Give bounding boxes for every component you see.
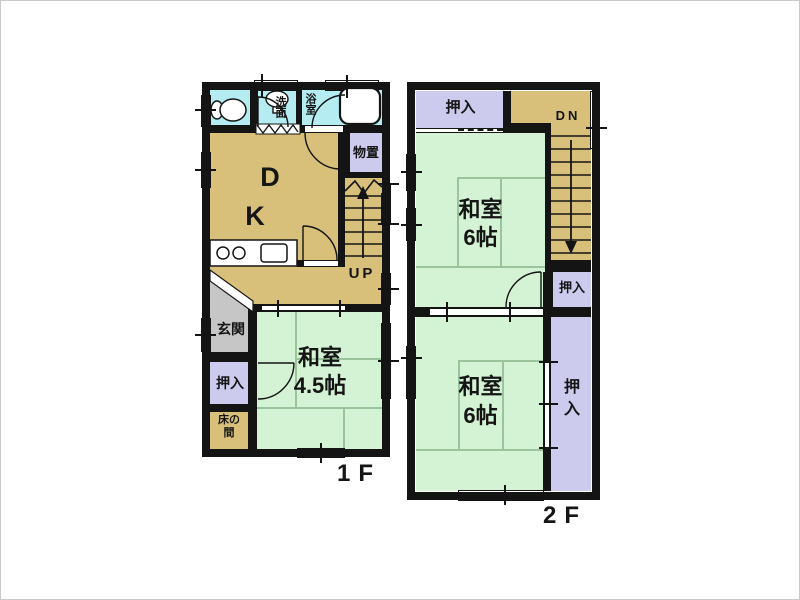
stairs-up-arrow bbox=[357, 186, 369, 258]
washitsu-6-upper-name: 和室 bbox=[418, 196, 543, 224]
closet-2f-top-label: 押入 bbox=[418, 99, 503, 117]
door-arc bbox=[303, 226, 337, 260]
tokonoma-label: 床の 間 bbox=[210, 414, 248, 440]
tokonoma-line1: 床の bbox=[210, 414, 248, 427]
floor-2-label: 2F bbox=[533, 502, 597, 531]
tokonoma-line2: 間 bbox=[210, 427, 248, 440]
washitsu-6-upper-label: 和室 6帖 bbox=[418, 196, 543, 252]
closet-2f-right-label: 押入 bbox=[561, 378, 577, 422]
window-ticks bbox=[195, 74, 607, 505]
washroom-label: 洗面 bbox=[274, 96, 285, 118]
dining-label: D bbox=[250, 161, 290, 193]
kitchen-label: K bbox=[235, 200, 275, 232]
kitchen-counter bbox=[210, 240, 297, 266]
door-arc bbox=[506, 272, 541, 307]
washitsu-6-upper-size: 6帖 bbox=[418, 224, 543, 252]
stairs-down-label: DN bbox=[547, 108, 589, 124]
closet-1f-label: 押入 bbox=[211, 375, 249, 392]
symbols-layer bbox=[0, 0, 800, 600]
accordion-door bbox=[256, 124, 300, 134]
entrance-label: 玄関 bbox=[211, 321, 251, 338]
stairs-up-label: UP bbox=[342, 265, 382, 283]
stairs-down-arrow bbox=[565, 140, 577, 254]
washitsu-4-5-name: 和室 bbox=[260, 344, 380, 372]
storage-label: 物置 bbox=[350, 145, 382, 161]
bathroom-label: 浴室 bbox=[304, 93, 315, 115]
washitsu-4-5-label: 和室 4.5帖 bbox=[260, 344, 380, 400]
washitsu-4-5-size: 4.5帖 bbox=[260, 372, 380, 400]
floor-plan: 洗面 浴室 D K 物置 UP 玄関 押入 床の 間 和室 4.5帖 1F 押入… bbox=[0, 0, 800, 600]
washitsu-6-lower-name: 和室 bbox=[418, 372, 543, 401]
floor-1-label: 1F bbox=[327, 460, 391, 489]
entrance-step bbox=[210, 267, 253, 312]
washitsu-6-lower-label: 和室 6帖 bbox=[418, 372, 543, 430]
washitsu-6-lower-size: 6帖 bbox=[418, 401, 543, 430]
closet-2f-mid-label: 押入 bbox=[551, 280, 593, 296]
toilet-icon bbox=[211, 99, 246, 121]
door-arc bbox=[305, 133, 341, 169]
